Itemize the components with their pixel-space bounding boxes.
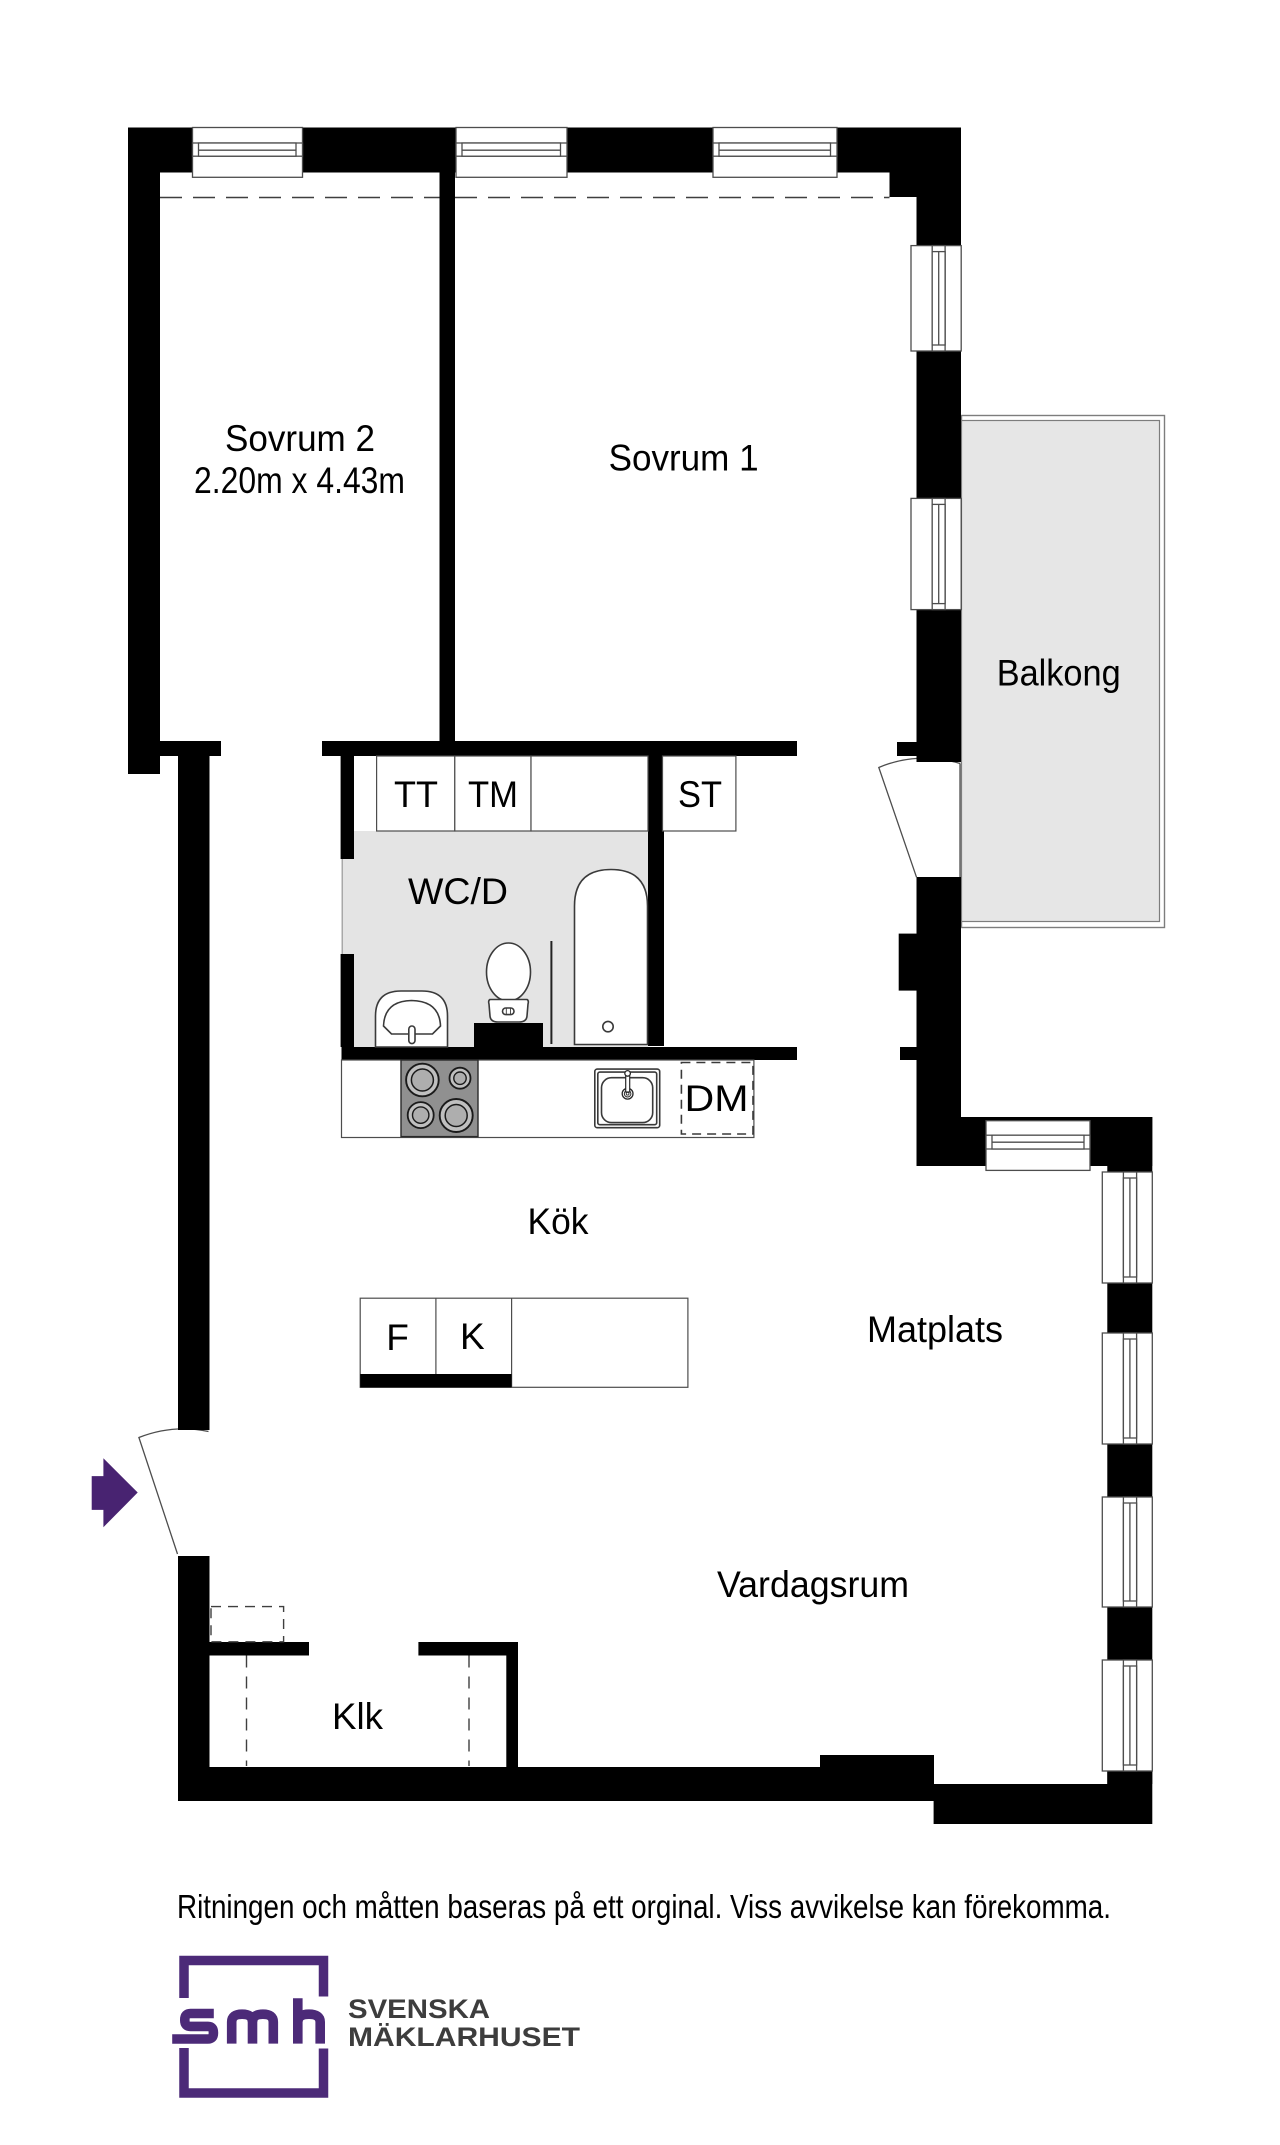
svg-text:WC/D: WC/D	[408, 871, 508, 912]
svg-text:TM: TM	[468, 774, 518, 815]
svg-text:Balkong: Balkong	[997, 653, 1121, 694]
svg-text:K: K	[460, 1316, 485, 1357]
svg-text:F: F	[386, 1317, 409, 1358]
svg-text:Ritningen och måtten baseras p: Ritningen och måtten baseras på ett orgi…	[177, 1888, 1111, 1925]
svg-text:Kök: Kök	[528, 1201, 589, 1242]
svg-text:2.20m x 4.43m: 2.20m x 4.43m	[194, 460, 405, 501]
svg-text:TT: TT	[394, 774, 438, 815]
svg-text:MÄKLARHUSET: MÄKLARHUSET	[348, 2022, 581, 2052]
svg-text:Vardagsrum: Vardagsrum	[717, 1564, 909, 1605]
svg-text:SVENSKA: SVENSKA	[348, 1994, 490, 2024]
svg-text:Klk: Klk	[332, 1696, 383, 1737]
svg-text:Sovrum 1: Sovrum 1	[609, 438, 759, 479]
svg-text:Matplats: Matplats	[867, 1309, 1003, 1350]
svg-text:DM: DM	[685, 1078, 749, 1119]
svg-text:ST: ST	[678, 774, 722, 815]
svg-text:Sovrum 2: Sovrum 2	[225, 418, 375, 459]
